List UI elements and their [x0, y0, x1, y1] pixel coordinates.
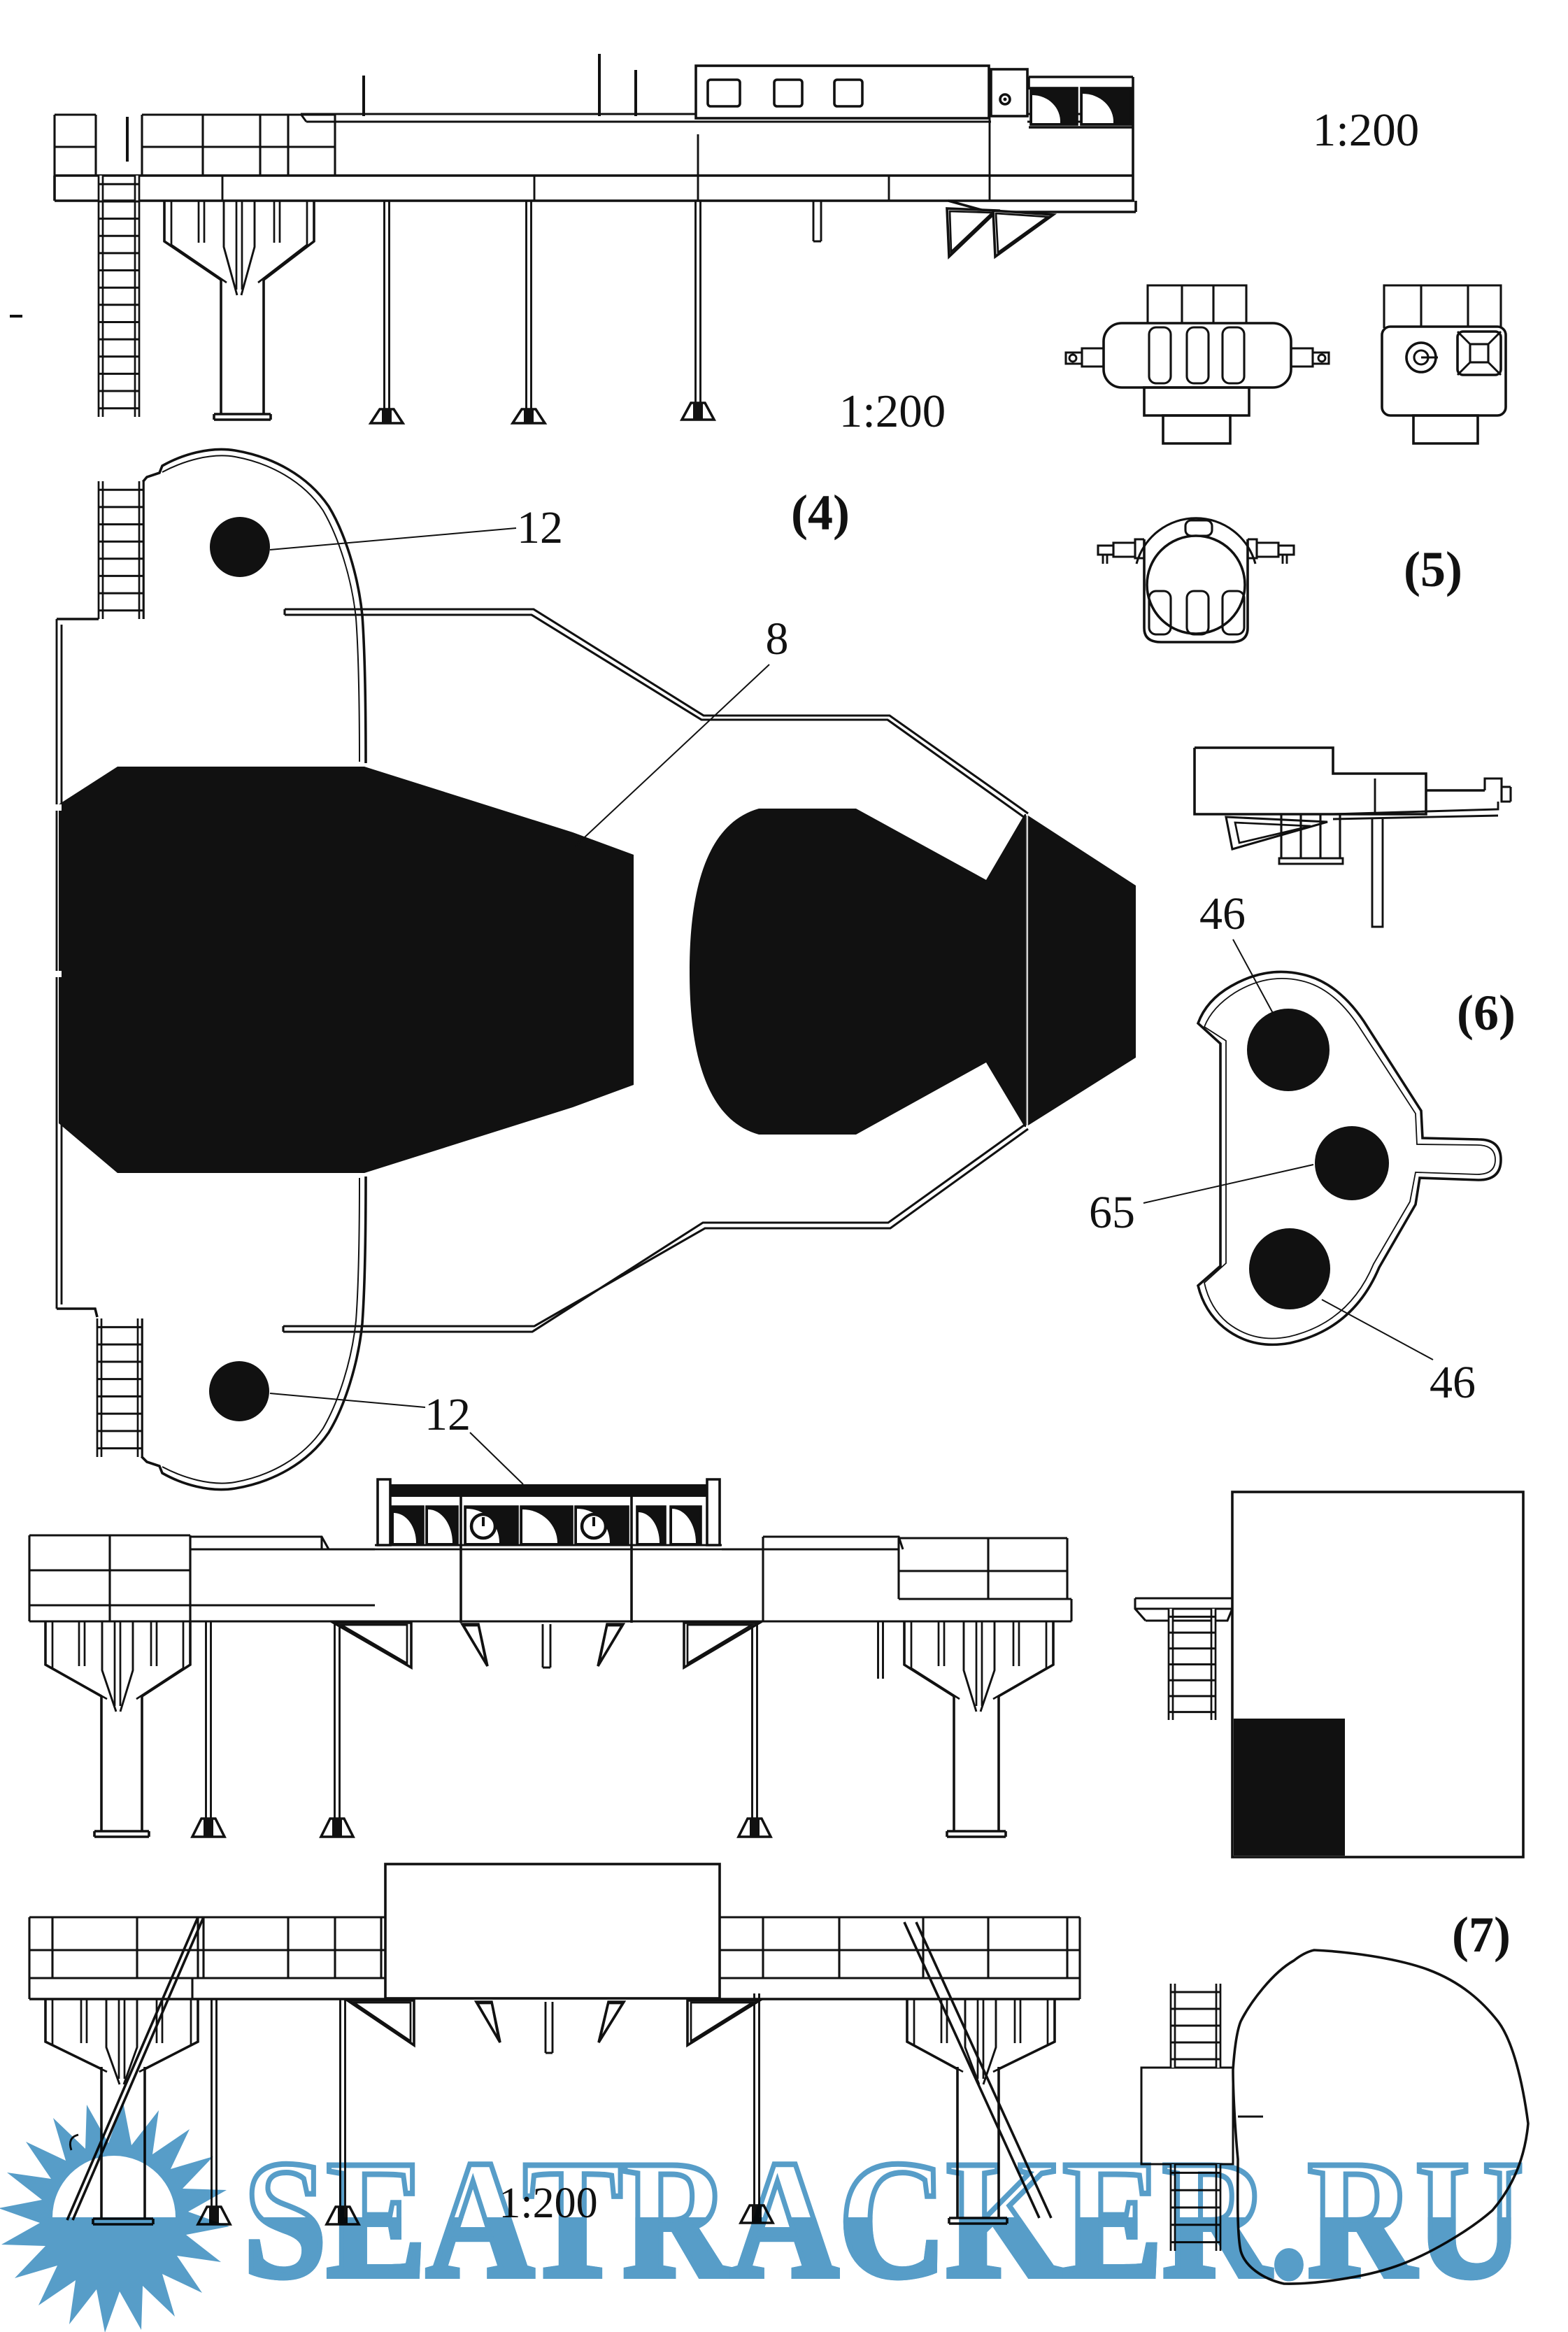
svg-text:(6): (6)	[1457, 985, 1516, 1041]
svg-text:(7): (7)	[1452, 1907, 1511, 1963]
svg-text:(5): (5)	[1404, 541, 1462, 597]
svg-text:46: 46	[1430, 1357, 1476, 1408]
svg-text:12: 12	[517, 502, 563, 553]
svg-text:(4): (4)	[791, 485, 850, 541]
svg-text:46: 46	[1199, 888, 1246, 939]
svg-text:8: 8	[766, 613, 789, 664]
svg-text:12: 12	[425, 1389, 471, 1440]
svg-text:1:200: 1:200	[839, 385, 946, 437]
svg-text:65: 65	[1089, 1187, 1135, 1238]
svg-text:1:200: 1:200	[1313, 104, 1420, 156]
